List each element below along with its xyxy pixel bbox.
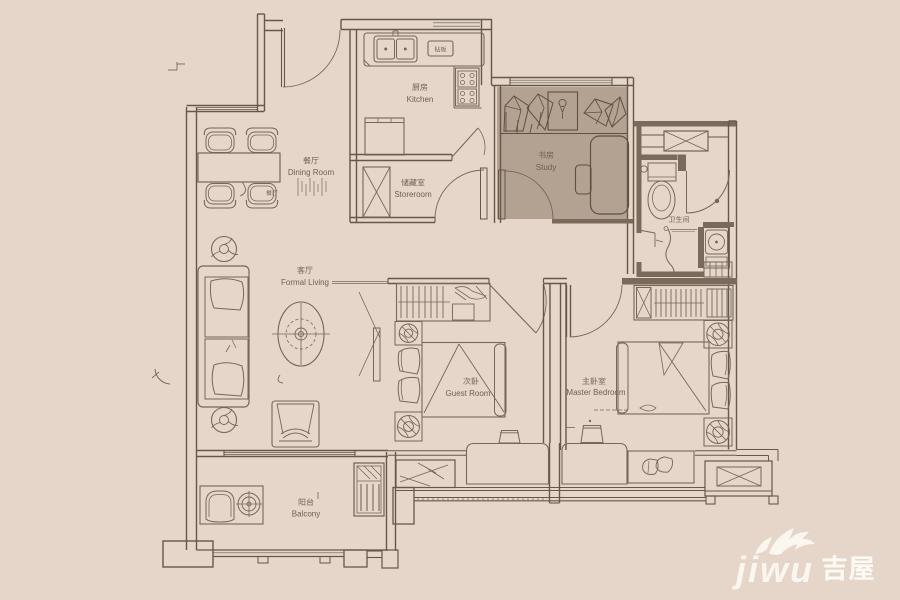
svg-text:Study: Study [536,163,556,172]
svg-text:Dining Room: Dining Room [288,168,335,177]
svg-text:Balcony: Balcony [292,510,320,519]
svg-text:Storeroom: Storeroom [394,190,432,199]
svg-text:jiwu: jiwu [732,549,814,590]
svg-text:Kitchen: Kitchen [407,95,434,104]
svg-text:Guest Room: Guest Room [446,389,491,398]
svg-text:Master Bedroom: Master Bedroom [566,388,625,397]
svg-text:Formal Living: Formal Living [281,278,329,287]
